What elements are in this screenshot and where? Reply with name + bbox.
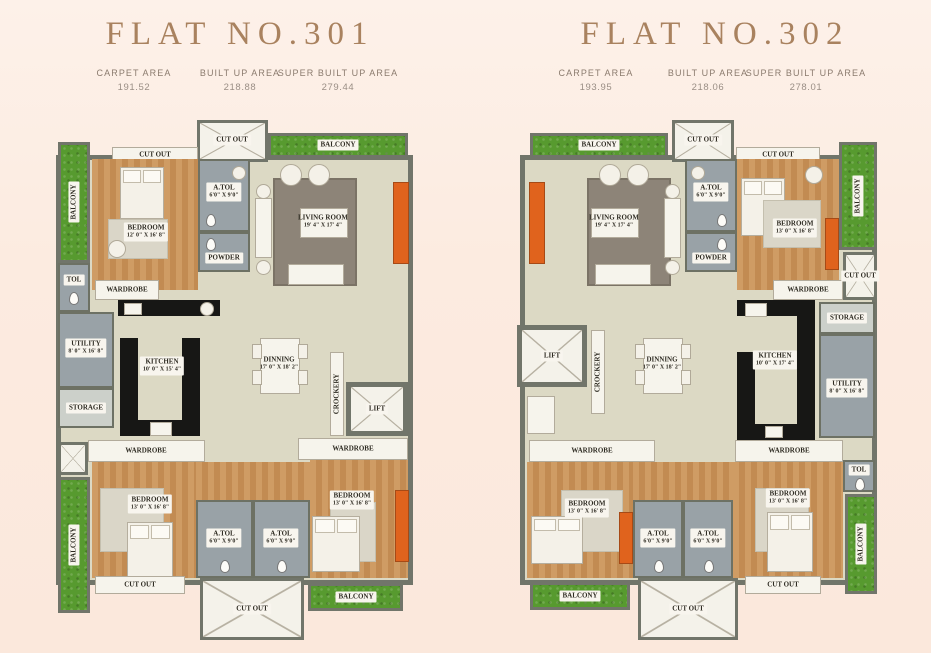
kitchen-island	[182, 338, 200, 436]
kitchen-counter	[797, 300, 815, 440]
powder-label: POWDER	[692, 252, 730, 263]
washbasin-icon	[691, 166, 705, 180]
toilet-icon	[855, 478, 865, 491]
tv-unit	[825, 218, 839, 270]
utility-label: UTILITY 8' 0" X 16' 8"	[826, 379, 867, 398]
toilet-icon	[69, 292, 79, 305]
dinning-label: DINNING 17' 0" X 18' 2"	[640, 355, 684, 374]
flat-301-super-builtup-area: SUPER BUILT UP AREA 279.44	[278, 68, 398, 93]
sofa-bottom	[288, 264, 344, 285]
bedroom-label: BEDROOM 13' 0" X 16' 8"	[128, 495, 172, 514]
flat-302-builtup-area: BUILT UP AREA 218.06	[668, 68, 748, 93]
tv-unit	[393, 182, 409, 264]
kitchen-label: KITCHEN 10' 0" X 17' 4"	[753, 351, 797, 370]
builtup-area-value: 218.88	[200, 82, 280, 93]
cutout-label: CUT OUT	[759, 149, 797, 160]
super-builtup-area-label: SUPER BUILT UP AREA	[746, 68, 866, 78]
washbasin-icon	[232, 166, 246, 180]
sofa-side	[664, 198, 681, 258]
tol-label: TOL	[849, 464, 870, 475]
balcony-label: BALCONY	[335, 591, 376, 602]
balcony-label: BALCONY	[68, 181, 79, 222]
balcony-label: BALCONY	[559, 590, 600, 601]
atol-label: A.TOL 6'0" X 9'0"	[206, 529, 241, 548]
flat-301-carpet-area: CARPET AREA 191.52	[97, 68, 172, 93]
sofa-bottom	[595, 264, 651, 285]
atol-label: A.TOL 6'0" X 9'0"	[263, 529, 298, 548]
cutout-label: CUT OUT	[669, 603, 707, 614]
lift-label: LIFT	[541, 350, 563, 361]
side-table	[665, 260, 680, 275]
dinning-label: DINNING 17' 0" X 18' 2"	[257, 355, 301, 374]
balcony-label: BALCONY	[68, 524, 79, 565]
wardrobe-label: WARDROBE	[122, 445, 169, 456]
wardrobe-label: WARDROBE	[784, 284, 831, 295]
atol-label: A.TOL 6'0" X 9'0"	[206, 183, 241, 202]
carpet-area-value: 191.52	[97, 82, 172, 93]
side-table	[256, 184, 271, 199]
toilet-icon	[704, 560, 714, 573]
bedroom-label: BEDROOM 13' 0" X 16' 8"	[766, 489, 810, 508]
cutout-label: CUT OUT	[233, 603, 271, 614]
bedroom-label: BEDROOM 13' 0" X 16' 8"	[565, 499, 609, 518]
wardrobe-label: WARDROBE	[765, 445, 812, 456]
tv-unit	[529, 182, 545, 264]
toilet-icon	[277, 560, 287, 573]
appliance-icon	[200, 302, 214, 316]
tv-unit	[395, 490, 409, 562]
kitchen-island	[120, 338, 138, 436]
kitchen-label: KITCHEN 10' 0" X 15' 4"	[140, 357, 184, 376]
carpet-area-label: CARPET AREA	[559, 68, 634, 78]
side-table	[665, 184, 680, 199]
sofa-side	[255, 198, 272, 258]
builtup-area-value: 218.06	[668, 82, 748, 93]
stove-icon	[745, 303, 767, 317]
lobby-shaft	[527, 396, 555, 434]
flat-302-title: FLAT NO.302	[581, 16, 850, 53]
flat-302-super-builtup-area: SUPER BUILT UP AREA 278.01	[746, 68, 866, 93]
crockery-label: CROCKERY	[331, 371, 342, 418]
living-room-label: LIVING ROOM 19' 4" X 17' 4"	[295, 213, 351, 232]
cutout-label: CUT OUT	[136, 149, 174, 160]
lift-label: LIFT	[366, 403, 388, 414]
builtup-area-label: BUILT UP AREA	[200, 68, 280, 78]
toilet-icon	[654, 560, 664, 573]
flat-301-builtup-area: BUILT UP AREA 218.88	[200, 68, 280, 93]
flat-301-plan: CUT OUT CUT OUT BALCONY BALCONY BALCONY …	[56, 120, 421, 650]
utility-label: UTILITY 8' 0" X 16' 8"	[65, 339, 106, 358]
cutout-label: CUT OUT	[841, 270, 879, 281]
carpet-area-label: CARPET AREA	[97, 68, 172, 78]
cutout-label: CUT OUT	[764, 579, 802, 590]
balcony-label: BALCONY	[855, 523, 866, 564]
bed	[120, 167, 164, 219]
atol-label: A.TOL 6'0" X 9'0"	[640, 529, 675, 548]
bed	[312, 516, 360, 572]
toilet-icon	[220, 560, 230, 573]
wardrobe-label: WARDROBE	[329, 443, 376, 454]
crockery-label: CROCKERY	[592, 349, 603, 396]
sink-icon	[765, 426, 783, 438]
cutout-label: CUT OUT	[684, 134, 722, 145]
bedroom-passage	[633, 462, 733, 500]
toilet-icon	[717, 238, 727, 251]
wardrobe-label: WARDROBE	[568, 445, 615, 456]
bed	[531, 516, 583, 564]
toilet-icon	[206, 214, 216, 227]
floor-plan-sheet: FLAT NO.301 CARPET AREA 191.52 BUILT UP …	[0, 0, 931, 653]
balcony-label: BALCONY	[852, 175, 863, 216]
tv-unit	[619, 512, 633, 564]
super-builtup-area-label: SUPER BUILT UP AREA	[278, 68, 398, 78]
flat-301-title: FLAT NO.301	[106, 16, 375, 53]
storage-label: STORAGE	[66, 402, 106, 413]
armchair	[599, 164, 621, 186]
carpet-area-value: 193.95	[559, 82, 634, 93]
armchair	[108, 240, 126, 258]
tol-label: TOL	[64, 274, 85, 285]
armchair	[805, 166, 823, 184]
balcony-label: BALCONY	[317, 139, 358, 150]
builtup-area-label: BUILT UP AREA	[668, 68, 748, 78]
cutout-label: CUT OUT	[213, 134, 251, 145]
side-table	[256, 260, 271, 275]
sink-icon	[124, 303, 142, 315]
bedroom-label: BEDROOM 13' 0" X 16' 8"	[773, 219, 817, 238]
bed	[127, 522, 173, 578]
bedroom-passage	[196, 462, 310, 500]
flat-302-carpet-area: CARPET AREA 193.95	[559, 68, 634, 93]
bed	[767, 512, 813, 572]
super-builtup-area-value: 279.44	[278, 82, 398, 93]
cutout-label: CUT OUT	[121, 579, 159, 590]
bedroom-label: BEDROOM 13' 0" X 16' 8"	[330, 491, 374, 510]
shaft-duct	[58, 442, 88, 475]
armchair	[627, 164, 649, 186]
storage-label: STORAGE	[827, 312, 867, 323]
atol-label: A.TOL 6'0" X 9'0"	[690, 529, 725, 548]
toilet-icon	[206, 238, 216, 251]
bedroom-label: BEDROOM 12' 0" X 16' 8"	[124, 223, 168, 242]
armchair	[280, 164, 302, 186]
armchair	[308, 164, 330, 186]
flat-302-plan: BALCONY CUT OUT CUT OUT BALCONY CUT OUT …	[517, 120, 887, 650]
stove-icon	[150, 422, 172, 436]
super-builtup-area-value: 278.01	[746, 82, 866, 93]
powder-label: POWDER	[205, 252, 243, 263]
atol-label: A.TOL 6'0" X 9'0"	[693, 183, 728, 202]
balcony-label: BALCONY	[578, 139, 619, 150]
toilet-icon	[717, 214, 727, 227]
living-room-label: LIVING ROOM 19' 4" X 17' 4"	[586, 213, 642, 232]
wardrobe-label: WARDROBE	[103, 284, 150, 295]
